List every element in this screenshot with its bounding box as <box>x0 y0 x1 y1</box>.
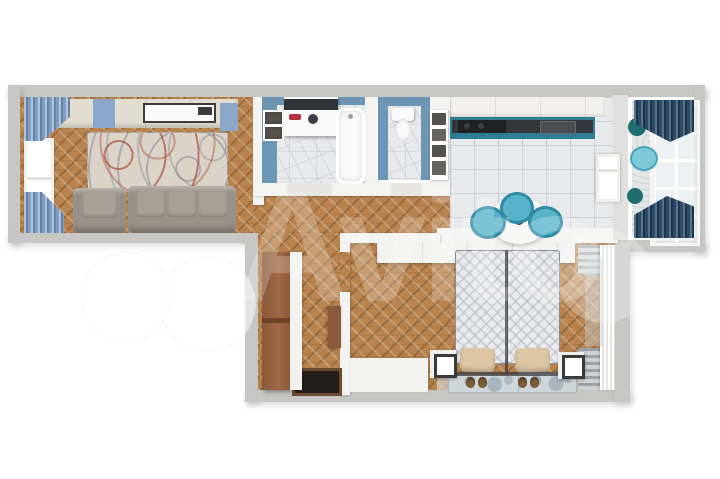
slippers-right <box>518 377 540 388</box>
wall-bathroom-wc <box>365 97 378 183</box>
outer-wall-left <box>8 85 20 243</box>
hallway-wardrobe <box>262 252 290 390</box>
slipper <box>478 377 487 388</box>
bathroom-door-opening <box>287 183 332 196</box>
kitchen-sink <box>540 121 576 134</box>
nightstand-right <box>558 352 584 379</box>
outer-wall-lower-left <box>245 233 258 402</box>
toilet-bowl <box>395 119 411 141</box>
outer-wall-living-bottom <box>8 233 250 243</box>
armchair-cushion <box>82 192 117 218</box>
bathroom-shelf-upper <box>263 110 284 126</box>
burner-1 <box>464 123 470 129</box>
photo-frame <box>434 354 457 378</box>
bathroom-shelf-lower <box>263 125 284 141</box>
slipper <box>530 377 539 388</box>
wc-wall-east <box>421 97 430 180</box>
hall-shelf-tower <box>430 110 448 180</box>
sofa-cushion-2 <box>167 190 196 217</box>
living-blue-panel-right <box>220 103 238 131</box>
bedroom-door-opening <box>340 252 350 292</box>
wall-wc-kitchen <box>430 97 450 111</box>
wardrobe-divider <box>262 318 290 323</box>
washer-door <box>308 114 318 124</box>
ac-vent-slot <box>198 107 212 115</box>
hallway-wardrobe-side <box>290 252 302 390</box>
bed-pillow-right <box>515 347 551 372</box>
balcony-stool-dark-bottom <box>627 188 643 204</box>
bed-headboard <box>455 372 558 376</box>
outer-wall-bedroom-right <box>615 243 630 402</box>
watermark-circle-1 <box>81 252 171 342</box>
bed-center-divider <box>505 250 508 374</box>
shelf-slot-4 <box>432 161 446 175</box>
outer-wall-top <box>8 85 705 97</box>
slipper <box>466 377 475 388</box>
floor-plan-render: Avito <box>0 0 720 479</box>
watermark-circle-2 <box>160 256 256 352</box>
washing-machine <box>284 97 338 136</box>
living-door-opening <box>253 205 264 233</box>
slipper <box>518 377 527 388</box>
kitchen-window-muntin <box>599 169 617 172</box>
bed-pillow-left <box>460 347 496 372</box>
balcony-stool-light <box>630 146 658 171</box>
armchair <box>73 188 126 233</box>
living-blue-panel-left <box>93 99 115 128</box>
bedroom-bench <box>350 358 428 392</box>
washer-red-button <box>289 114 301 120</box>
hallway-upper-floor <box>253 196 450 233</box>
bathtub-drain <box>348 114 353 119</box>
wall-bedroom-top <box>340 233 440 243</box>
kitchen-window <box>596 154 620 202</box>
kitchen-chair-right <box>528 206 563 238</box>
sofa-cushion-3 <box>198 190 227 217</box>
living-rug <box>87 132 228 192</box>
bed-duvet-right <box>507 250 560 364</box>
photo-frame <box>562 355 585 379</box>
bathtub <box>336 108 365 184</box>
bedroom-sheer-curtain <box>585 258 603 346</box>
wc-wall-west <box>378 97 388 180</box>
kitchen-counter <box>450 117 595 139</box>
ac-unit <box>143 103 216 123</box>
burner-2 <box>478 123 484 129</box>
kitchen-upper-cabinets <box>450 97 605 117</box>
washer-control-panel <box>284 99 338 110</box>
hallway-shelf <box>328 306 341 348</box>
wc-door-opening <box>391 183 421 196</box>
sofa-cushion-1 <box>136 190 165 217</box>
shelf-slot-3 <box>432 145 446 157</box>
window-muntin <box>27 177 51 180</box>
slippers-left <box>466 377 488 388</box>
nightstand-left <box>430 350 456 378</box>
shelf-slot-1 <box>432 113 446 125</box>
sofa <box>128 186 236 233</box>
shelf-slot-2 <box>432 129 446 141</box>
